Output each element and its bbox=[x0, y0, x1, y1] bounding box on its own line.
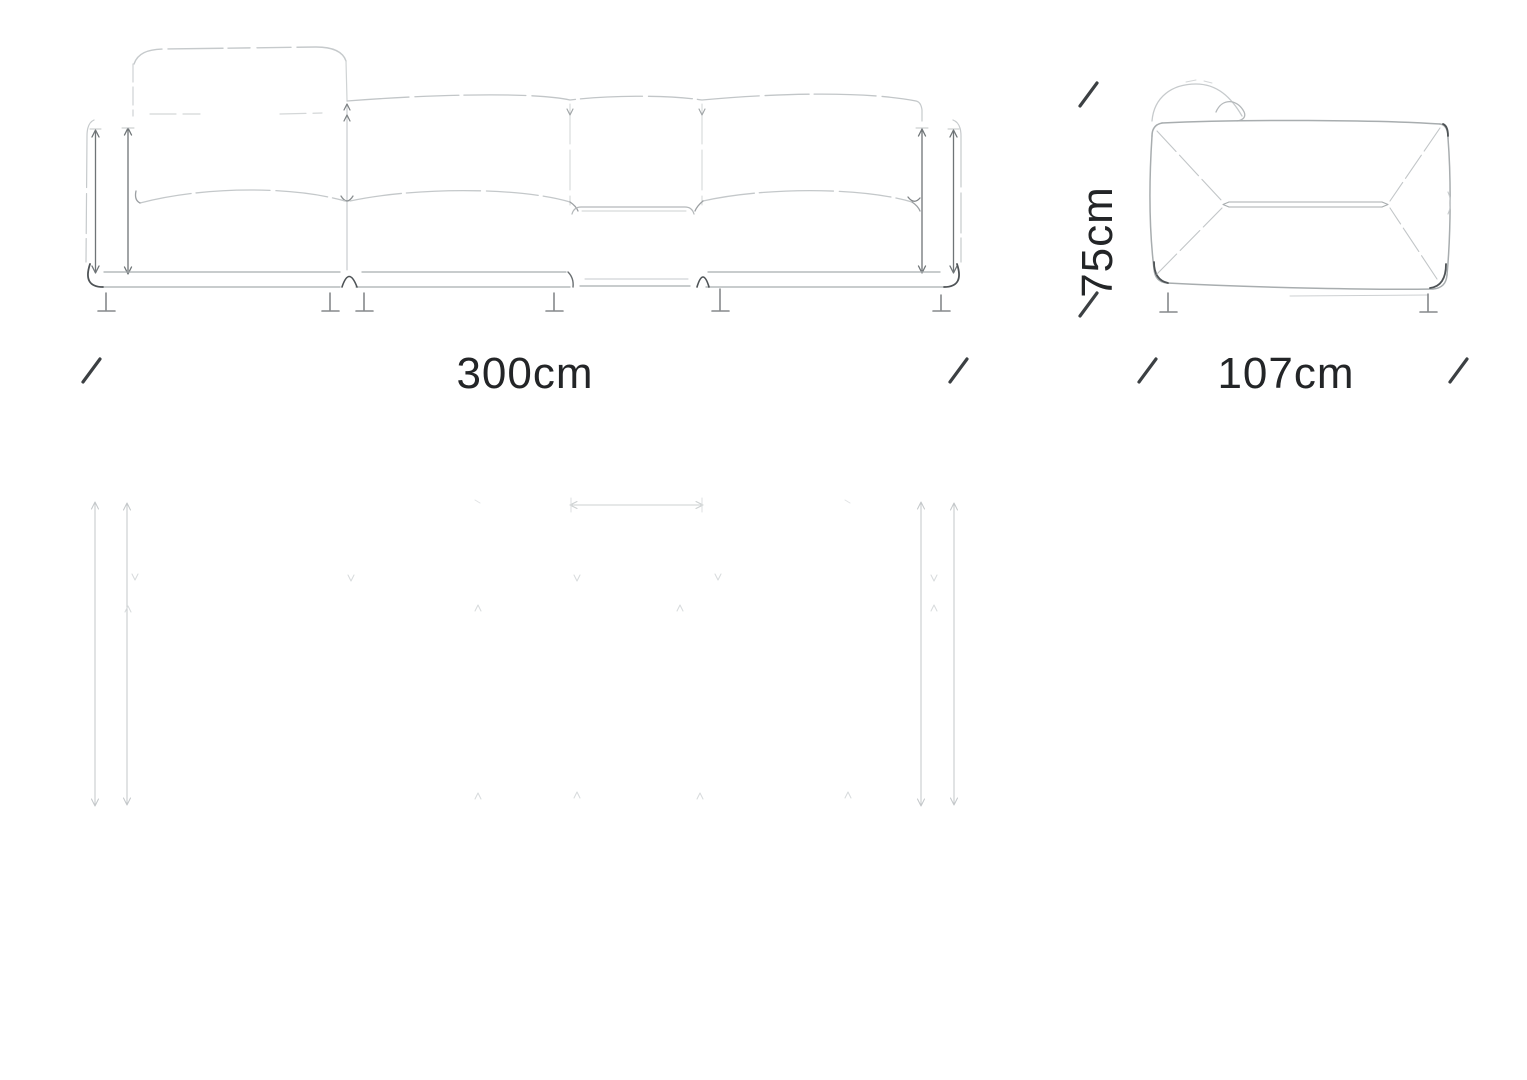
sofa-leg bbox=[933, 295, 950, 311]
sofa-leg bbox=[98, 293, 115, 311]
plan-right-vertical-lines bbox=[918, 502, 958, 806]
side-pillow bbox=[1152, 80, 1245, 121]
side-height-dimension-label: 75cm bbox=[1073, 186, 1122, 298]
right-arm-rails bbox=[916, 128, 959, 273]
right-arm-outer-edge bbox=[953, 120, 961, 262]
sofa-leg bbox=[1420, 294, 1437, 312]
dimension-tick bbox=[950, 359, 967, 382]
front-width-dimension-label: 300cm bbox=[456, 349, 593, 398]
seat-cushions bbox=[140, 190, 912, 203]
rail-junction-1 bbox=[342, 277, 357, 288]
seat-cushion-line bbox=[140, 190, 345, 203]
seat-cushion-line bbox=[350, 191, 570, 202]
dimension-tick bbox=[1080, 83, 1097, 106]
side-depth-dimension-label: 107cm bbox=[1217, 349, 1354, 398]
diagram-canvas: 300cm 107cm 75cm bbox=[0, 0, 1527, 1080]
dimension-tick bbox=[1139, 359, 1156, 382]
front-legs bbox=[98, 289, 950, 311]
center-slot bbox=[1223, 202, 1388, 207]
sofa-backrest-right-corner bbox=[916, 101, 922, 121]
side-view bbox=[1150, 80, 1451, 312]
dimension-tick bbox=[1450, 359, 1467, 382]
dimension-tick bbox=[83, 359, 100, 382]
console-divider-arrows bbox=[567, 109, 705, 115]
side-bottom-double-line bbox=[1290, 295, 1428, 296]
diagonal-fold-lines bbox=[1157, 128, 1440, 279]
sofa-backrest-line bbox=[347, 94, 916, 101]
left-arm-outer-edge bbox=[86, 120, 94, 262]
rail-junction-3 bbox=[697, 277, 709, 287]
seat-cushion-line bbox=[703, 191, 912, 202]
rail-junction-2 bbox=[568, 272, 573, 287]
sofa-leg bbox=[356, 293, 373, 311]
plan-horizontal-dimension bbox=[570, 498, 703, 512]
sofa-leg bbox=[1160, 293, 1177, 312]
left-arm-rails bbox=[90, 128, 134, 274]
front-view bbox=[86, 47, 961, 311]
sofa-headrest-right-edge bbox=[346, 61, 347, 100]
sofa-dimension-diagram: 300cm 107cm 75cm bbox=[0, 0, 1527, 1080]
plan-view-ghost bbox=[92, 498, 958, 806]
bottom-rail bbox=[88, 264, 959, 287]
plan-faint-marks bbox=[125, 500, 937, 799]
sofa-leg bbox=[546, 293, 563, 311]
module-divider bbox=[341, 104, 353, 270]
dimension-ticks bbox=[83, 83, 1467, 382]
plan-left-vertical-lines bbox=[92, 502, 131, 806]
sofa-headrest-outline bbox=[134, 47, 346, 64]
sofa-leg bbox=[322, 293, 339, 311]
sofa-leg bbox=[712, 289, 729, 311]
middle-console bbox=[572, 207, 694, 279]
sofa-headrest-base-dashes bbox=[150, 113, 322, 114]
side-corner-accents bbox=[1154, 124, 1448, 288]
side-body-outline bbox=[1150, 120, 1451, 296]
